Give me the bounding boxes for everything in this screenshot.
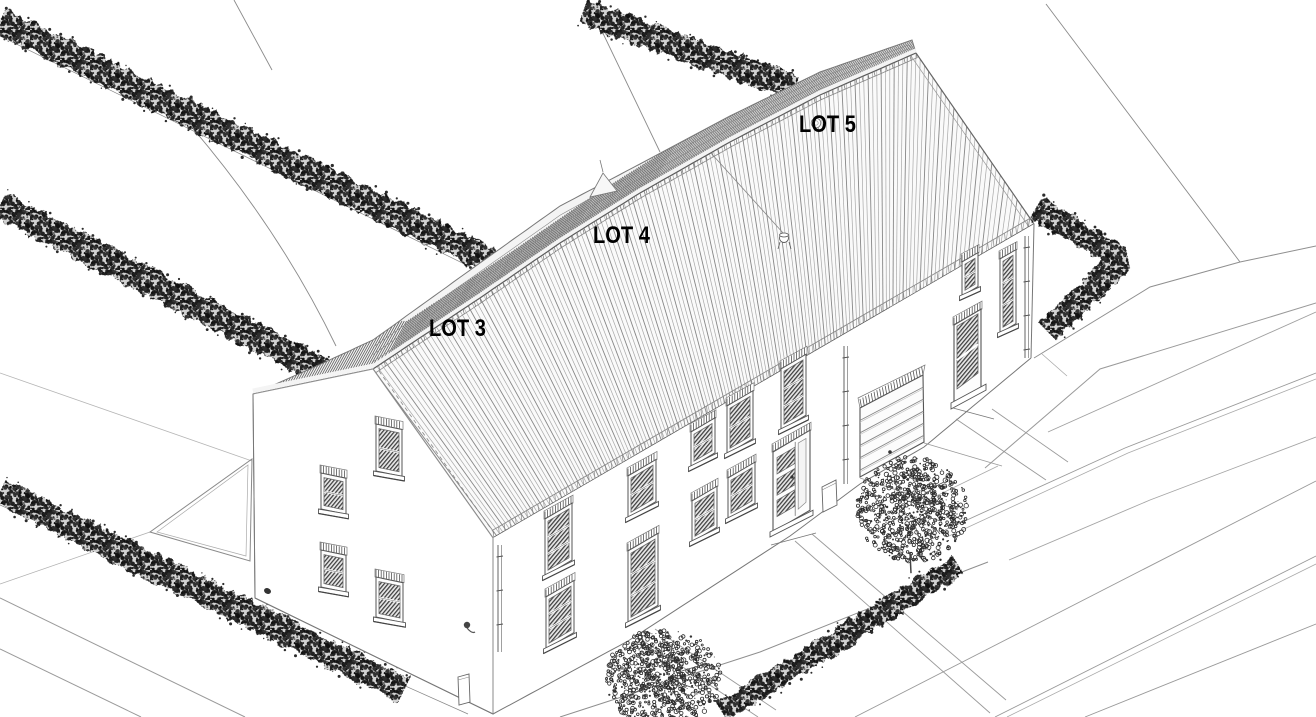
svg-text:LOT 3: LOT 3 [429, 315, 486, 342]
svg-text:LOT 4: LOT 4 [593, 222, 650, 249]
svg-text:LOT 5: LOT 5 [799, 111, 856, 138]
